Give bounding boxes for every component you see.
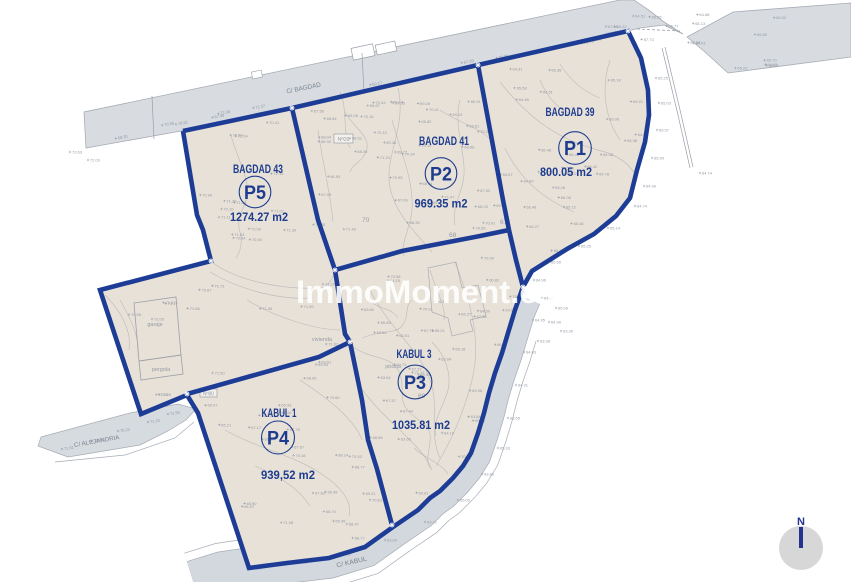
svg-text:65.13: 65.13 [695, 21, 706, 26]
svg-text:64.51: 64.51 [543, 89, 554, 94]
svg-text:68.47: 68.47 [349, 522, 360, 527]
svg-text:66.06: 66.06 [609, 117, 620, 122]
svg-text:65.45: 65.45 [335, 519, 346, 524]
svg-text:68.49: 68.49 [357, 149, 368, 154]
svg-text:67.83: 67.83 [315, 491, 326, 496]
svg-text:64.69: 64.69 [519, 97, 530, 102]
svg-text:70.99: 70.99 [202, 193, 213, 198]
svg-text:63.89: 63.89 [484, 472, 495, 477]
svg-text:65.85: 65.85 [757, 32, 768, 37]
svg-text:71.35: 71.35 [262, 306, 273, 311]
svg-text:65.26: 65.26 [555, 185, 566, 190]
svg-text:63.54: 63.54 [381, 375, 392, 380]
svg-text:67.67: 67.67 [294, 445, 305, 450]
svg-text:64.68: 64.68 [699, 12, 710, 17]
svg-text:Nº09: Nº09 [337, 136, 349, 143]
svg-text:66.82: 66.82 [421, 119, 432, 124]
svg-text:68.77: 68.77 [355, 536, 366, 541]
svg-text:71.63: 71.63 [234, 232, 245, 237]
svg-text:969.35 m2: 969.35 m2 [415, 197, 468, 211]
svg-text:63.84: 63.84 [471, 414, 482, 419]
svg-text:66.36: 66.36 [574, 221, 585, 226]
svg-text:67.73: 67.73 [644, 37, 655, 42]
svg-text:70.18: 70.18 [296, 453, 307, 458]
svg-text:68.03: 68.03 [478, 204, 489, 209]
svg-text:71.30: 71.30 [226, 198, 237, 203]
svg-text:P4: P4 [267, 428, 289, 449]
svg-text:67.76: 67.76 [424, 328, 435, 333]
svg-text:64.31: 64.31 [518, 383, 529, 388]
svg-text:63.65: 63.65 [510, 416, 521, 421]
svg-text:70.91: 70.91 [485, 220, 496, 225]
svg-text:65.93: 65.93 [281, 403, 292, 408]
svg-text:65.18: 65.18 [611, 78, 622, 83]
svg-text:71.66: 71.66 [190, 306, 201, 311]
svg-text:69.23: 69.23 [452, 112, 463, 117]
svg-text:72.63: 72.63 [72, 150, 83, 155]
svg-text:70.34: 70.34 [405, 152, 416, 157]
svg-text:65.58: 65.58 [517, 85, 528, 90]
svg-text:70.67: 70.67 [202, 287, 213, 292]
svg-text:71.24: 71.24 [380, 155, 391, 160]
svg-text:70.63: 70.63 [372, 497, 383, 502]
svg-text:65.27: 65.27 [529, 224, 540, 229]
svg-text:65.32: 65.32 [776, 15, 787, 20]
svg-text:65.25: 65.25 [658, 76, 669, 81]
svg-text:KABUL 1: KABUL 1 [262, 408, 297, 420]
svg-text:70.54: 70.54 [252, 237, 263, 242]
svg-text:65.85: 65.85 [381, 320, 392, 325]
svg-text:63.64: 63.64 [441, 357, 452, 362]
svg-text:65.22: 65.22 [617, 24, 628, 29]
svg-text:1274.27 m2: 1274.27 m2 [230, 210, 288, 224]
svg-text:65.12: 65.12 [566, 205, 577, 210]
svg-text:71.08: 71.08 [283, 520, 294, 525]
svg-text:68.64: 68.64 [327, 116, 338, 121]
svg-text:69.87: 69.87 [370, 103, 381, 108]
svg-text:63.51: 63.51 [399, 333, 410, 338]
svg-text:1035.81 m2: 1035.81 m2 [392, 418, 450, 432]
svg-text:P5: P5 [244, 183, 266, 204]
svg-text:66.91: 66.91 [471, 99, 482, 104]
svg-text:P1: P1 [564, 137, 586, 160]
svg-text:70.10: 70.10 [377, 130, 388, 135]
svg-text:64.31: 64.31 [513, 67, 524, 72]
svg-text:Nº80: Nº80 [203, 392, 214, 398]
svg-text:67.17: 67.17 [251, 425, 262, 430]
svg-text:71.43: 71.43 [346, 227, 357, 232]
svg-text:66.38: 66.38 [627, 138, 638, 143]
svg-text:70.60: 70.60 [330, 395, 341, 400]
svg-text:70.09: 70.09 [484, 255, 495, 260]
svg-text:70.14: 70.14 [393, 100, 404, 105]
svg-text:65.57: 65.57 [659, 128, 670, 133]
svg-text:70.65: 70.65 [476, 226, 487, 231]
svg-text:66.48: 66.48 [328, 489, 339, 494]
svg-text:68.77: 68.77 [355, 465, 366, 470]
svg-text:64.83: 64.83 [768, 62, 779, 67]
svg-text:pergola: pergola [152, 367, 171, 373]
svg-text:65.33: 65.33 [500, 446, 511, 451]
svg-text:70.41: 70.41 [269, 120, 280, 125]
svg-text:68.61: 68.61 [469, 123, 480, 128]
svg-text:63.39: 63.39 [563, 329, 574, 334]
svg-text:64.61: 64.61 [696, 41, 707, 46]
svg-text:68.58: 68.58 [373, 435, 384, 440]
svg-text:63.69: 63.69 [387, 538, 398, 543]
svg-text:67.44: 67.44 [403, 409, 414, 414]
svg-text:66.18: 66.18 [455, 346, 466, 351]
svg-text:70.52: 70.52 [233, 133, 244, 138]
svg-text:65.90: 65.90 [654, 156, 665, 161]
svg-text:70.59: 70.59 [251, 226, 262, 231]
svg-text:68: 68 [449, 232, 457, 239]
svg-text:65.26: 65.26 [652, 14, 663, 19]
svg-text:64.78: 64.78 [599, 171, 610, 176]
svg-text:67.56: 67.56 [314, 108, 325, 113]
svg-text:67.57: 67.57 [386, 398, 397, 403]
svg-text:800.05 m2: 800.05 m2 [540, 165, 592, 179]
svg-text:939,52 m2: 939,52 m2 [261, 468, 315, 482]
svg-text:64.51: 64.51 [635, 14, 646, 19]
svg-text:garaje: garaje [147, 322, 162, 328]
svg-text:68.06: 68.06 [307, 376, 318, 381]
svg-text:69.46: 69.46 [386, 140, 397, 145]
svg-text:69.07: 69.07 [208, 403, 219, 408]
svg-text:64.83: 64.83 [526, 350, 537, 355]
svg-text:65.01: 65.01 [435, 328, 446, 333]
svg-text:63.65: 63.65 [401, 437, 412, 442]
svg-text:71.50: 71.50 [215, 370, 226, 375]
svg-text:KABUL 3: KABUL 3 [397, 349, 432, 361]
svg-text:65.25: 65.25 [581, 244, 592, 249]
svg-text:63.38: 63.38 [540, 339, 551, 344]
svg-text:69.08: 69.08 [348, 113, 359, 118]
svg-text:72.03: 72.03 [90, 158, 101, 163]
svg-text:70.16: 70.16 [364, 114, 375, 119]
svg-text:64.95: 64.95 [535, 318, 546, 323]
svg-text:67.50: 67.50 [480, 188, 491, 193]
svg-text:70.73: 70.73 [214, 283, 225, 288]
svg-text:65.21: 65.21 [221, 422, 232, 427]
svg-text:70.55: 70.55 [131, 312, 142, 317]
svg-text:66.06: 66.06 [561, 195, 572, 200]
svg-text:70: 70 [362, 217, 370, 224]
svg-text:70.41: 70.41 [429, 107, 440, 112]
svg-text:69.21: 69.21 [366, 491, 377, 496]
svg-text:68.70: 68.70 [326, 509, 337, 514]
svg-text:64.74: 64.74 [637, 204, 648, 209]
svg-text:P3: P3 [404, 373, 426, 394]
svg-text:P2: P2 [430, 164, 452, 185]
svg-text:71.37: 71.37 [166, 300, 177, 305]
svg-text:64.57: 64.57 [503, 172, 514, 177]
svg-text:BAGDAD 39: BAGDAD 39 [546, 107, 595, 119]
svg-text:66.93: 66.93 [330, 174, 341, 179]
svg-text:71.39: 71.39 [286, 228, 297, 233]
svg-text:64.38: 64.38 [603, 152, 614, 157]
svg-text:64.74: 64.74 [702, 171, 713, 176]
svg-text:69.28: 69.28 [420, 101, 431, 106]
svg-text:65.48: 65.48 [541, 147, 552, 152]
svg-text:69.81: 69.81 [419, 490, 430, 495]
svg-text:67.55: 67.55 [608, 24, 619, 29]
svg-text:66.48: 66.48 [526, 205, 537, 210]
svg-text:70.95: 70.95 [393, 175, 404, 180]
svg-text:72.03: 72.03 [154, 317, 165, 322]
svg-text:63.71: 63.71 [427, 520, 438, 525]
svg-text:64.96: 64.96 [472, 388, 483, 393]
svg-text:BAGDAD 41: BAGDAD 41 [419, 136, 469, 148]
svg-text:65.41: 65.41 [633, 99, 644, 104]
svg-text:72.09: 72.09 [161, 392, 172, 397]
svg-text:65.00: 65.00 [460, 498, 471, 503]
svg-text:67.09: 67.09 [398, 198, 409, 203]
svg-text:ImmoMoment.es: ImmoMoment.es [296, 274, 556, 310]
svg-text:64.99: 64.99 [646, 184, 657, 189]
svg-text:65.09: 65.09 [558, 306, 569, 311]
svg-text:66.36: 66.36 [551, 68, 562, 73]
svg-text:68.51: 68.51 [352, 136, 363, 141]
svg-text:63.64: 63.64 [377, 330, 388, 335]
svg-text:67.35: 67.35 [477, 314, 488, 319]
svg-text:65.50: 65.50 [318, 362, 329, 367]
svg-text:67.09: 67.09 [321, 192, 332, 197]
svg-text:68.35: 68.35 [410, 220, 421, 225]
svg-text:65.03: 65.03 [738, 66, 749, 71]
svg-text:BAGDAD 43: BAGDAD 43 [233, 164, 283, 176]
svg-text:64.60: 64.60 [524, 179, 535, 184]
svg-text:64.71: 64.71 [396, 362, 407, 367]
svg-text:65.14: 65.14 [610, 226, 621, 231]
svg-text:66.57: 66.57 [244, 504, 255, 509]
svg-text:65.77: 65.77 [668, 23, 679, 28]
svg-text:65.03: 65.03 [661, 101, 672, 106]
svg-text:N: N [797, 516, 805, 528]
svg-text:70.53: 70.53 [352, 454, 363, 459]
svg-text:68.04: 68.04 [321, 135, 332, 140]
svg-text:68.14: 68.14 [338, 453, 349, 458]
svg-text:64.99: 64.99 [551, 320, 562, 325]
svg-text:65.37: 65.37 [461, 312, 472, 317]
svg-text:67.37: 67.37 [412, 366, 423, 371]
